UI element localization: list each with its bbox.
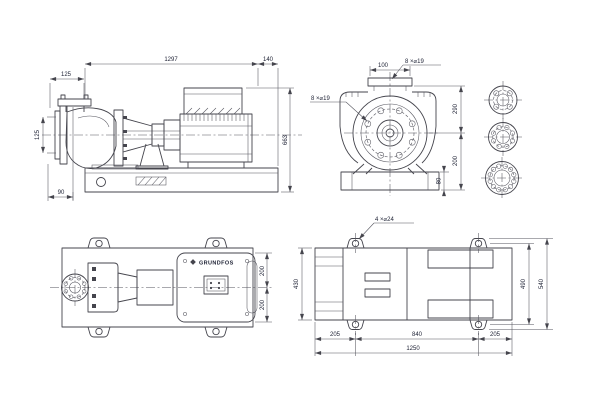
drawing-canvas: 1297 140 125 125 90 663 — [0, 0, 600, 400]
baseplate-side — [85, 168, 278, 192]
dim-foot-offset: 90 — [58, 190, 65, 196]
fan-cover-right — [412, 92, 436, 126]
side-view: 1297 140 125 125 90 663 — [35, 57, 302, 201]
grundfos-logo-icon — [190, 259, 196, 265]
grundfos-logo-text: GRUNDFOS — [199, 261, 234, 267]
dim-overall-length: 1297 — [164, 57, 178, 63]
baseplate-slot — [365, 273, 390, 281]
callout-suction-holes: 8 ×⌀19 — [311, 96, 330, 102]
dim-cl-to-bottom: 200 — [260, 299, 266, 310]
motor-fins — [184, 114, 244, 121]
dim-rear-overhang: 140 — [263, 57, 274, 63]
baseplate-outline — [315, 248, 512, 320]
baseplate-slot — [365, 289, 390, 297]
volute-casing — [66, 108, 116, 169]
dim-total-length: 1250 — [406, 346, 420, 352]
dim-centerline-to-base: 200 — [453, 155, 459, 166]
discharge-flange — [58, 99, 91, 106]
callout-discharge-holes: 8 ×⌀19 — [405, 59, 424, 65]
motor-body — [180, 114, 252, 162]
dim-overall-height: 663 — [283, 134, 289, 145]
dim-base-height: 80 — [437, 177, 443, 184]
pump-plan-view: GRUNDFOS 200 200 — [50, 238, 272, 337]
dim-cl-to-top: 200 — [260, 265, 266, 276]
dim-suction-diameter: 125 — [35, 129, 41, 140]
dim-end-margin-right: 205 — [490, 332, 501, 338]
flange-details — [481, 81, 523, 199]
dim-top-width: 100 — [378, 63, 389, 69]
pump-dimensional-drawing: 1297 140 125 125 90 663 — [0, 0, 600, 400]
dim-plate-width: 430 — [294, 278, 300, 289]
baseplate-plan-view: 4 ×⌀24 205 840 205 1250 430 490 540 — [294, 217, 553, 356]
callout-anchor-holes: 4 ×⌀24 — [375, 217, 394, 223]
dim-hole-span-width: 490 — [521, 278, 527, 289]
casing-cover — [114, 110, 123, 166]
motor-pad — [428, 300, 493, 318]
dim-total-width: 540 — [539, 278, 545, 289]
mounting-hole — [96, 240, 102, 246]
motor-feet — [188, 162, 244, 168]
motor-pad — [428, 250, 493, 268]
front-view: 100 8 ×⌀19 8 ×⌀19 290 200 80 — [310, 59, 465, 196]
dim-discharge-offset: 125 — [61, 72, 72, 78]
terminal-box — [184, 88, 242, 114]
terminal-box-plan — [204, 276, 228, 294]
dim-end-margin-left: 205 — [330, 332, 341, 338]
dim-hole-span: 840 — [412, 332, 423, 338]
dim-flange-to-centerline: 290 — [453, 103, 459, 114]
baseplate-hole — [97, 178, 106, 187]
